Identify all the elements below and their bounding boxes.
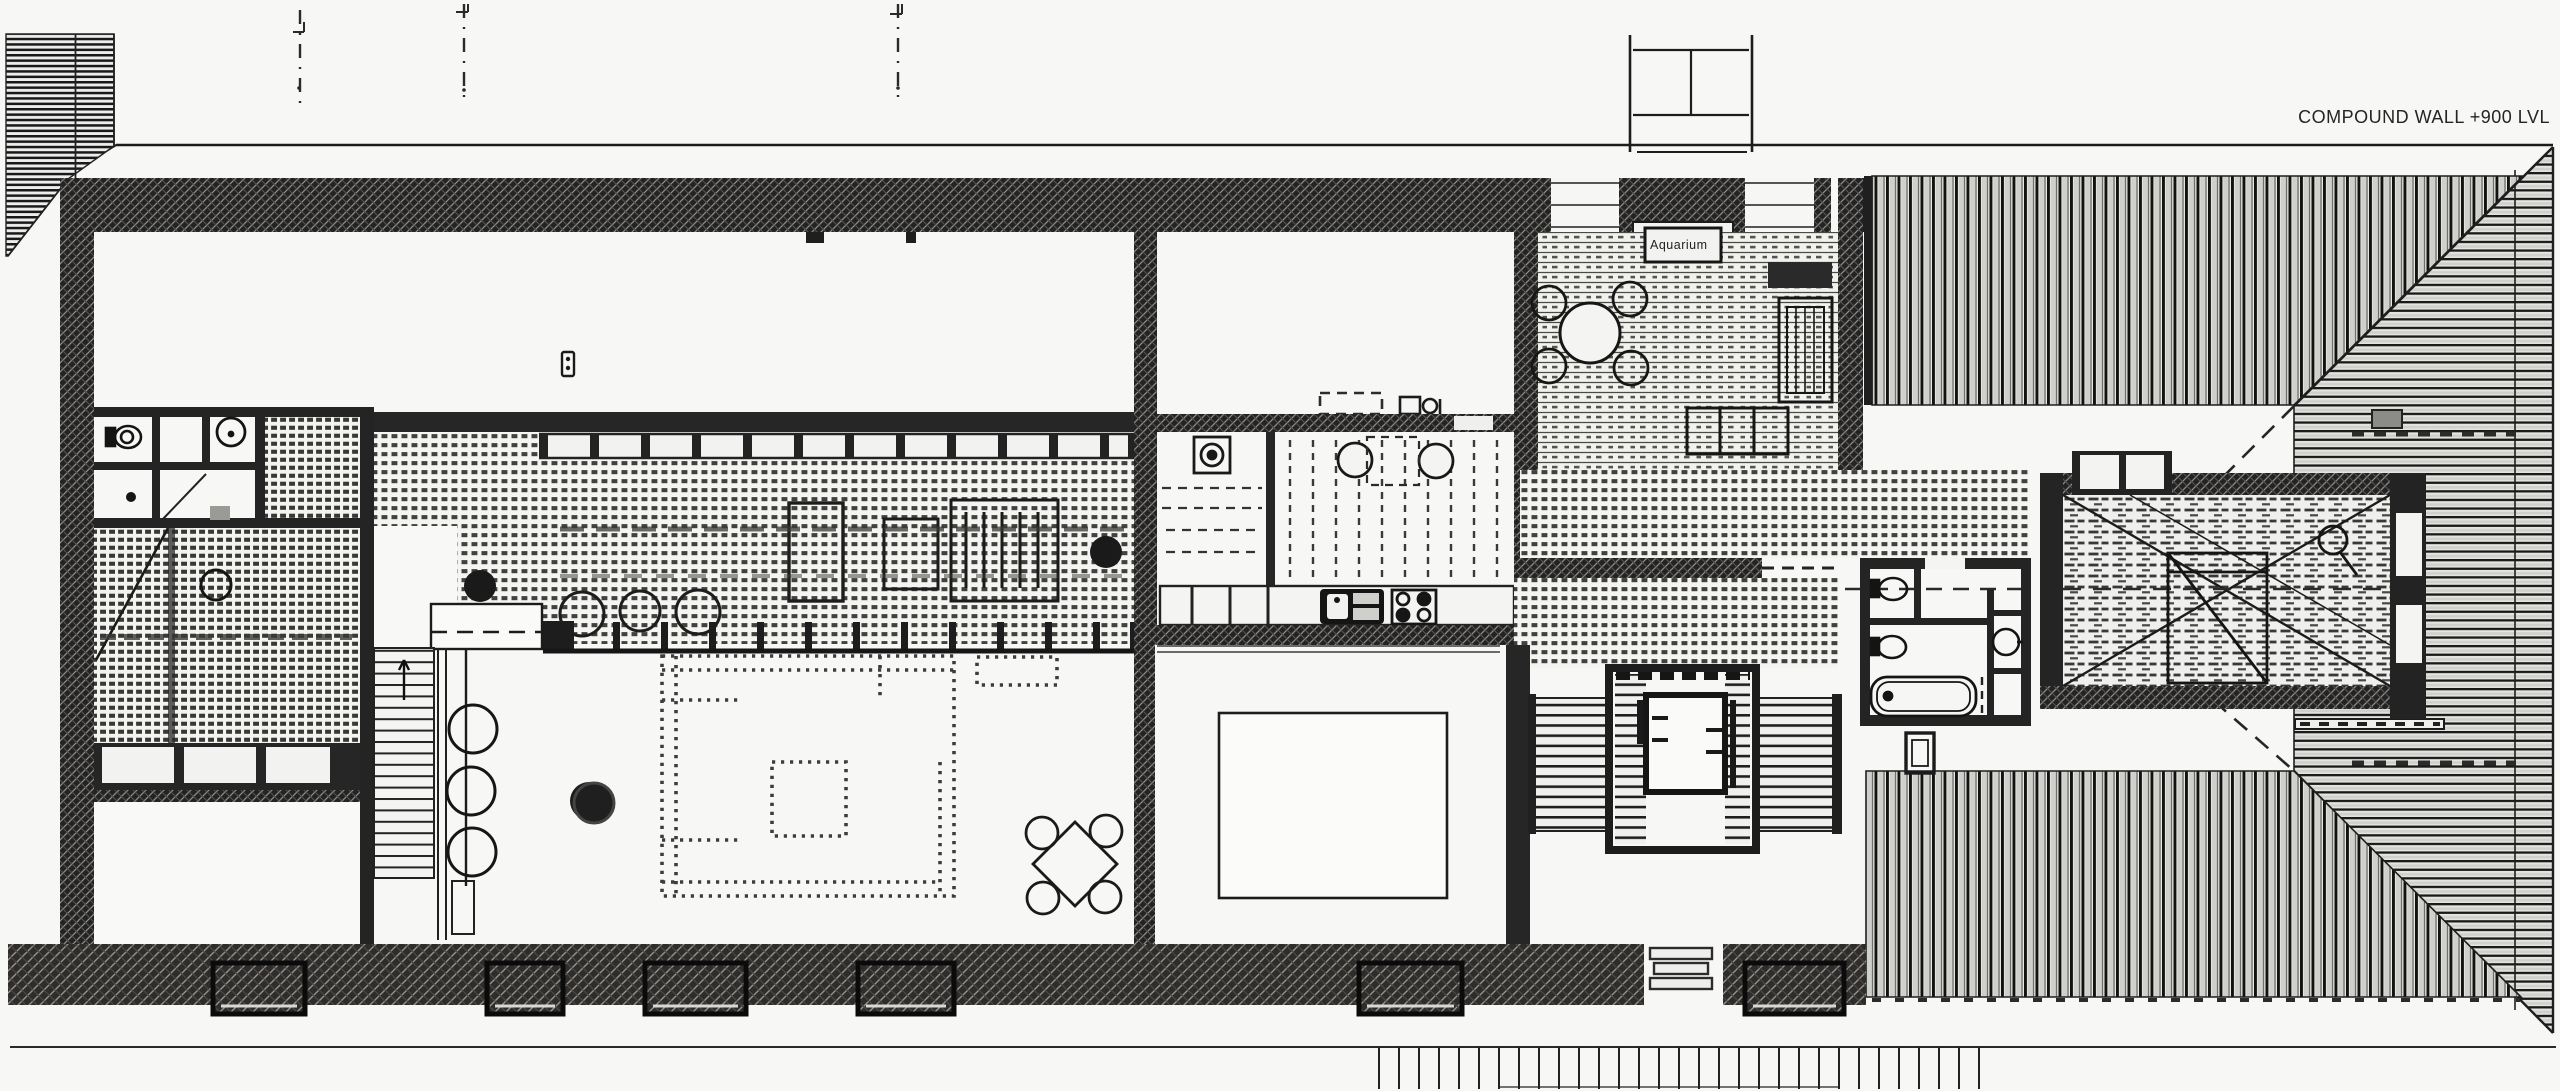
svg-text:Aquarium: Aquarium — [1650, 238, 1708, 252]
svg-text:COMPOUND WALL +900 LVL: COMPOUND WALL +900 LVL — [2298, 107, 2550, 127]
